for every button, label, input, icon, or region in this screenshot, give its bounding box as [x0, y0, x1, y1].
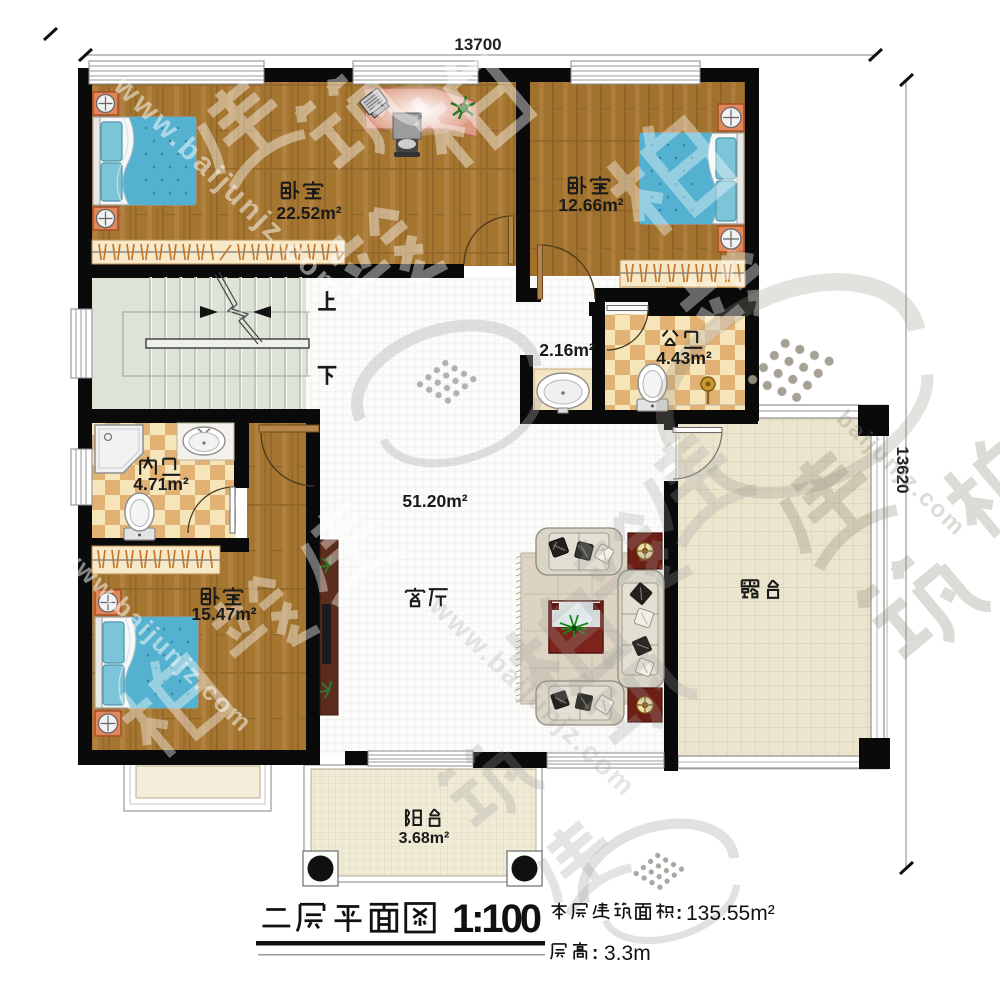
svg-text:3.68m²: 3.68m² — [399, 830, 450, 847]
svg-text:3.3m: 3.3m — [604, 942, 651, 965]
svg-text:135.55m²: 135.55m² — [686, 902, 775, 925]
svg-text:22.52m²: 22.52m² — [276, 203, 341, 223]
svg-text::: : — [592, 943, 598, 964]
svg-text:51.20m²: 51.20m² — [402, 491, 467, 511]
svg-text:2.16m²: 2.16m² — [539, 340, 595, 360]
svg-text:1:100: 1:100 — [452, 897, 542, 941]
svg-text:12.66m²: 12.66m² — [558, 195, 623, 215]
svg-text:4.43m²: 4.43m² — [656, 348, 712, 368]
svg-text:15.47m²: 15.47m² — [191, 604, 256, 624]
svg-text:4.71m²: 4.71m² — [133, 474, 189, 494]
svg-text::: : — [676, 903, 682, 924]
svg-text:13700: 13700 — [454, 35, 501, 54]
